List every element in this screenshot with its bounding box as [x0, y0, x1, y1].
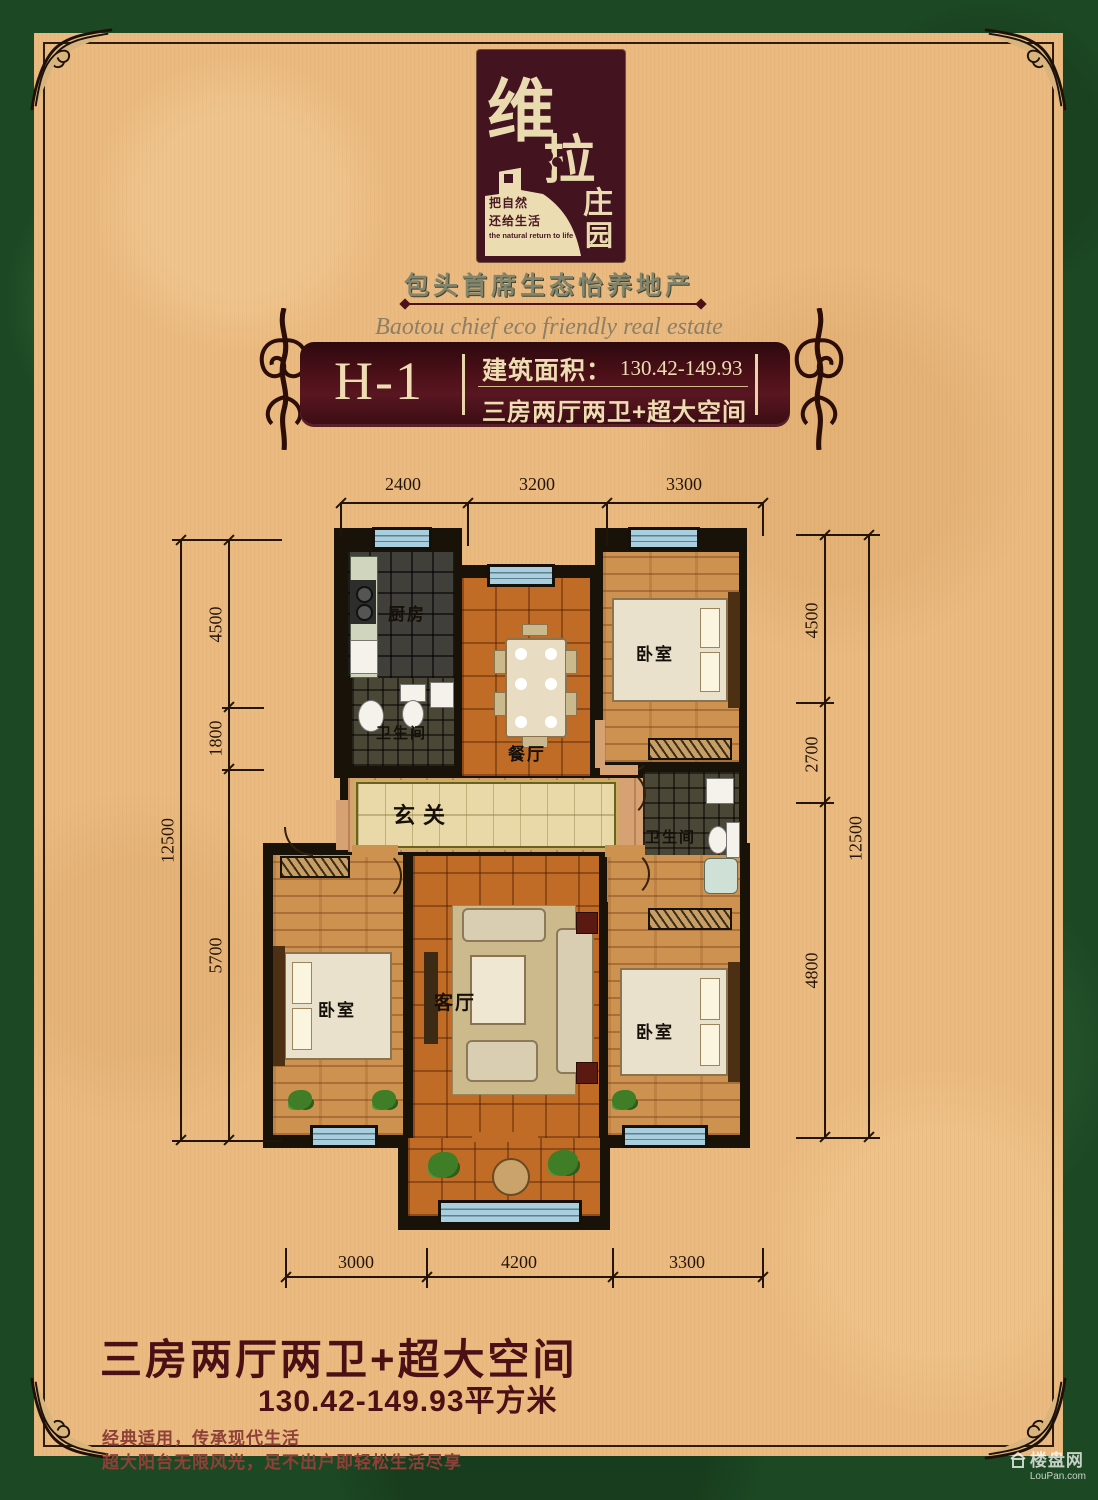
- footer-desc-2: 超大阳台无限风光，足不出户即轻松生活尽享: [102, 1448, 462, 1473]
- bath2-toilet: [708, 826, 728, 854]
- kitchen-sink: [350, 640, 378, 674]
- bedroom3-headboard: [728, 962, 740, 1082]
- speaker: [576, 912, 598, 934]
- dim-ext: [796, 702, 834, 704]
- dim-ext: [467, 502, 469, 546]
- dim-ext: [340, 502, 342, 536]
- banner-flourish-right: [788, 308, 850, 450]
- pillow: [700, 652, 720, 692]
- brand-logo-badge: 维 拉 庄 园 把自然 还给生活 the natural return to l…: [477, 50, 625, 262]
- watermark-house-icon: [1008, 1450, 1028, 1470]
- sofa-loveseat: [462, 908, 546, 942]
- pillow: [700, 608, 720, 648]
- dim-line-right-total: [868, 535, 870, 1138]
- plate: [545, 648, 557, 660]
- dining-chair: [522, 624, 548, 636]
- dim-right-3: 4800: [802, 931, 823, 1011]
- watermark-url: LouPan.com: [1030, 1471, 1086, 1482]
- logo-slogan-line1: 把自然: [489, 194, 528, 211]
- unit-code: H-1: [334, 350, 424, 412]
- bedroom3-window: [622, 1125, 708, 1148]
- banner-divider-right: [755, 354, 758, 415]
- dim-right-2: 2700: [802, 715, 823, 795]
- label-bedroom1: 卧室: [636, 640, 674, 665]
- bath2-toilet-tank: [726, 822, 740, 858]
- bath1-washer: [430, 682, 454, 708]
- bedroom2-window: [310, 1125, 378, 1148]
- bedroom2-wardrobe: [280, 856, 350, 878]
- dining-chair: [494, 692, 506, 716]
- bedroom3-wardrobe: [648, 908, 732, 930]
- dim-right-total: 12500: [846, 799, 867, 879]
- dim-ext: [285, 1248, 287, 1288]
- poster-page: 维 拉 庄 园 把自然 还给生活 the natural return to l…: [0, 0, 1098, 1500]
- headline-divider: [405, 303, 701, 305]
- bath2-door-arc: [598, 770, 646, 818]
- sofa-main: [556, 928, 594, 1074]
- dim-bottom-2: 4200: [479, 1252, 559, 1273]
- dim-left-3: 5700: [206, 916, 227, 996]
- logo-slogan-english: the natural return to life: [489, 231, 573, 240]
- stove-burner-2: [356, 604, 373, 621]
- dim-line-right-seg: [824, 535, 826, 1138]
- dim-right-1: 4500: [802, 581, 823, 661]
- bedroom1-wardrobe: [648, 738, 732, 760]
- dining-window: [487, 564, 555, 587]
- balcony-window: [438, 1200, 582, 1225]
- dim-top-2: 3200: [497, 474, 577, 495]
- logo-char-yuan: 园: [585, 214, 613, 254]
- sofa-single: [466, 1040, 538, 1082]
- dining-table: [505, 638, 567, 738]
- footer-desc-1: 经典适用，传承现代生活: [102, 1424, 300, 1449]
- label-bedroom2: 卧室: [318, 996, 356, 1021]
- bath2-basin: [706, 778, 734, 804]
- plate: [515, 678, 527, 690]
- dining-chair: [565, 650, 577, 674]
- bedroom2-headboard: [273, 946, 285, 1066]
- dim-ext: [796, 802, 834, 804]
- area-label: 建筑面积：: [482, 351, 612, 387]
- label-bath2: 卫生间: [645, 826, 696, 847]
- dim-line-left-seg: [228, 540, 230, 1141]
- pillow: [292, 1008, 312, 1050]
- dining-chair: [494, 650, 506, 674]
- label-kitchen: 厨房: [388, 600, 426, 625]
- dim-ext: [762, 502, 764, 536]
- label-foyer: 玄关: [393, 798, 453, 830]
- bedroom3-door-arc: [602, 850, 650, 898]
- balcony-opening: [472, 1132, 538, 1142]
- label-bedroom3: 卧室: [636, 1018, 674, 1043]
- kitchen-stove: [350, 580, 376, 624]
- pillow: [700, 978, 720, 1020]
- dim-left-2: 1800: [206, 699, 227, 779]
- banner-layout-text: 三房两厅两卫+超大空间: [482, 392, 747, 427]
- label-dining: 餐厅: [508, 740, 546, 765]
- dim-left-total: 12500: [158, 801, 179, 881]
- plate: [545, 716, 557, 728]
- dim-bottom-3: 3300: [647, 1252, 727, 1273]
- watermark-name: 楼盘网: [1030, 1446, 1086, 1471]
- corner-flourish-top-right: [983, 26, 1069, 112]
- dim-ext: [606, 502, 608, 546]
- bedroom2-door-arc: [350, 850, 402, 902]
- dim-ext: [426, 1248, 428, 1288]
- dining-chair: [565, 692, 577, 716]
- area-value: 130.42-149.93: [620, 356, 743, 381]
- dim-line-top: [340, 502, 764, 504]
- label-living: 客厅: [434, 988, 476, 1015]
- dim-line-left-total: [180, 540, 182, 1141]
- bedroom1-headboard: [728, 592, 740, 708]
- kitchen-window: [372, 527, 432, 550]
- dim-left-1: 4500: [206, 585, 227, 665]
- unit-banner: H-1 建筑面积： 130.42-149.93 三房两厅两卫+超大空间: [300, 342, 790, 427]
- banner-divider-left: [462, 354, 465, 415]
- tagline-english: Baotou chief eco friendly real estate: [0, 314, 1098, 341]
- dim-ext: [762, 1248, 764, 1288]
- stove-burner-1: [356, 586, 373, 603]
- label-bath1: 卫生间: [376, 722, 427, 743]
- dim-line-bottom: [285, 1276, 764, 1278]
- pillow: [292, 962, 312, 1004]
- balcony-table: [492, 1158, 530, 1196]
- bath2-tub: [704, 858, 738, 894]
- headline: 包头首席生态怡养地产: [0, 266, 1098, 302]
- bedroom1-window: [628, 527, 700, 550]
- dim-top-1: 2400: [363, 474, 443, 495]
- plate: [515, 648, 527, 660]
- speaker: [576, 1062, 598, 1084]
- corner-flourish-top-left: [28, 26, 114, 112]
- dim-top-3: 3300: [644, 474, 724, 495]
- banner-underline: [478, 386, 748, 387]
- plate: [515, 716, 527, 728]
- plate: [545, 678, 557, 690]
- pillow: [700, 1024, 720, 1066]
- logo-slogan-line2: 还给生活: [489, 212, 541, 229]
- footer-area: 130.42-149.93平方米: [258, 1376, 558, 1420]
- watermark: 楼盘网 LouPan.com: [1030, 1446, 1086, 1482]
- coffee-table: [470, 955, 526, 1025]
- dim-bottom-1: 3000: [316, 1252, 396, 1273]
- dim-ext: [612, 1248, 614, 1288]
